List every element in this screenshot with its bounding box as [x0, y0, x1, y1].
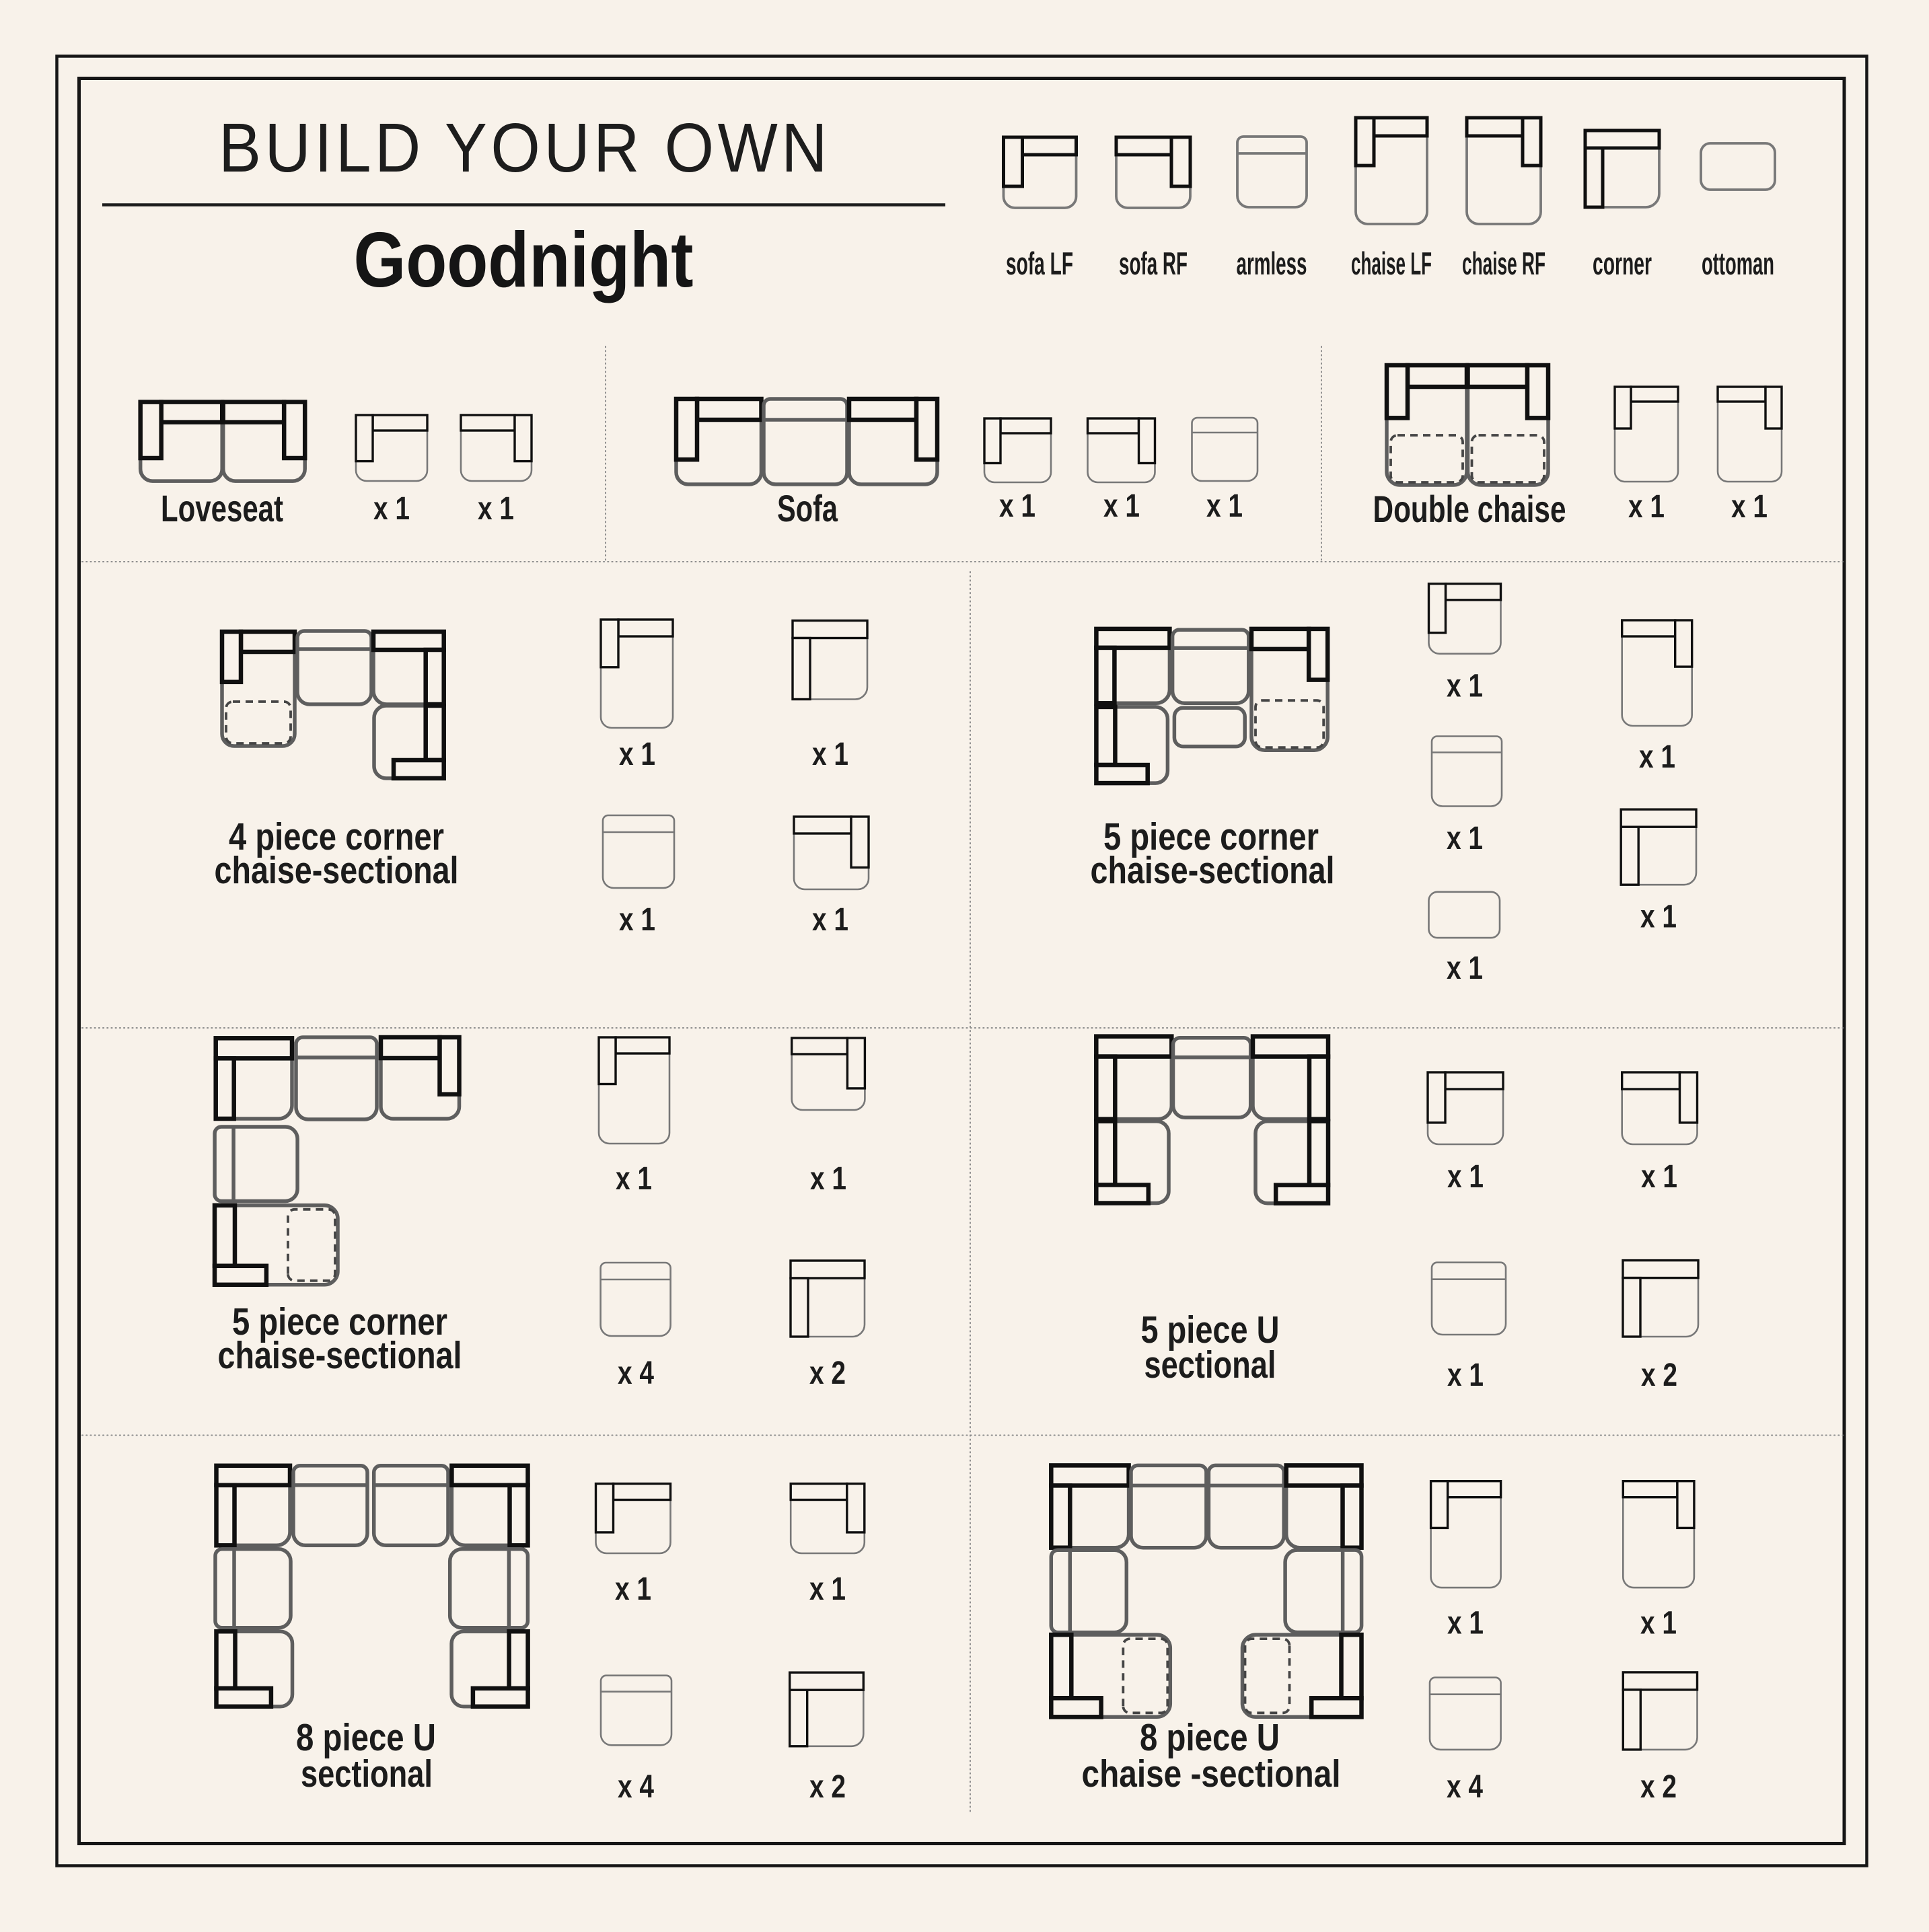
- svg-text:x 1: x 1: [615, 1571, 651, 1607]
- svg-text:BUILD YOUR OWN: BUILD YOUR OWN: [219, 109, 831, 186]
- svg-text:x 1: x 1: [809, 1571, 846, 1607]
- svg-text:chaise RF: chaise RF: [1462, 246, 1545, 281]
- svg-text:x 1: x 1: [1640, 1606, 1677, 1641]
- svg-text:corner: corner: [1593, 246, 1652, 281]
- svg-text:x 4: x 4: [618, 1355, 654, 1391]
- svg-text:x 1: x 1: [1447, 821, 1483, 856]
- svg-text:Loveseat: Loveseat: [161, 487, 283, 529]
- svg-text:x 2: x 2: [809, 1355, 846, 1391]
- svg-text:x 1: x 1: [1640, 899, 1677, 935]
- svg-text:chaise-sectional: chaise-sectional: [218, 1334, 462, 1377]
- svg-text:x 1: x 1: [1103, 488, 1140, 524]
- svg-text:chaise-sectional: chaise-sectional: [215, 849, 459, 892]
- svg-text:x 2: x 2: [809, 1769, 846, 1805]
- svg-text:x 4: x 4: [618, 1769, 654, 1805]
- svg-text:sectional: sectional: [1144, 1343, 1276, 1386]
- svg-text:chaise -sectional: chaise -sectional: [1082, 1752, 1341, 1795]
- svg-text:x 1: x 1: [1447, 951, 1483, 986]
- svg-text:x 1: x 1: [1641, 1159, 1677, 1195]
- svg-text:Double chaise: Double chaise: [1373, 488, 1566, 530]
- svg-text:x 1: x 1: [1731, 489, 1768, 525]
- svg-text:x 1: x 1: [1447, 1358, 1484, 1393]
- svg-text:chaise-sectional: chaise-sectional: [1091, 849, 1335, 892]
- svg-text:ottoman: ottoman: [1702, 246, 1774, 281]
- svg-text:sectional: sectional: [301, 1752, 433, 1795]
- svg-text:x 1: x 1: [478, 491, 514, 527]
- svg-text:x 1: x 1: [1447, 1606, 1484, 1641]
- svg-text:x 1: x 1: [812, 737, 848, 772]
- svg-text:x 1: x 1: [810, 1161, 846, 1197]
- svg-text:Goodnight: Goodnight: [354, 216, 694, 303]
- svg-text:sofa LF: sofa LF: [1006, 246, 1073, 281]
- svg-text:x 1: x 1: [1447, 1159, 1484, 1195]
- svg-text:chaise LF: chaise LF: [1351, 246, 1432, 281]
- svg-text:x 2: x 2: [1640, 1769, 1677, 1805]
- svg-text:x 1: x 1: [1628, 489, 1665, 525]
- svg-text:x 2: x 2: [1641, 1358, 1677, 1393]
- svg-text:sofa RF: sofa RF: [1119, 246, 1188, 281]
- svg-text:x 1: x 1: [616, 1161, 652, 1197]
- svg-text:Sofa: Sofa: [777, 487, 838, 529]
- svg-text:x 1: x 1: [1639, 739, 1675, 775]
- svg-text:x 1: x 1: [1447, 669, 1483, 704]
- svg-text:armless: armless: [1237, 246, 1307, 281]
- svg-text:x 1: x 1: [1206, 488, 1243, 524]
- svg-text:x 1: x 1: [619, 737, 655, 772]
- svg-text:x 1: x 1: [373, 491, 410, 527]
- svg-text:x 4: x 4: [1447, 1769, 1483, 1805]
- svg-text:x 1: x 1: [999, 488, 1035, 524]
- svg-text:x 1: x 1: [812, 902, 848, 938]
- svg-text:x 1: x 1: [619, 902, 655, 938]
